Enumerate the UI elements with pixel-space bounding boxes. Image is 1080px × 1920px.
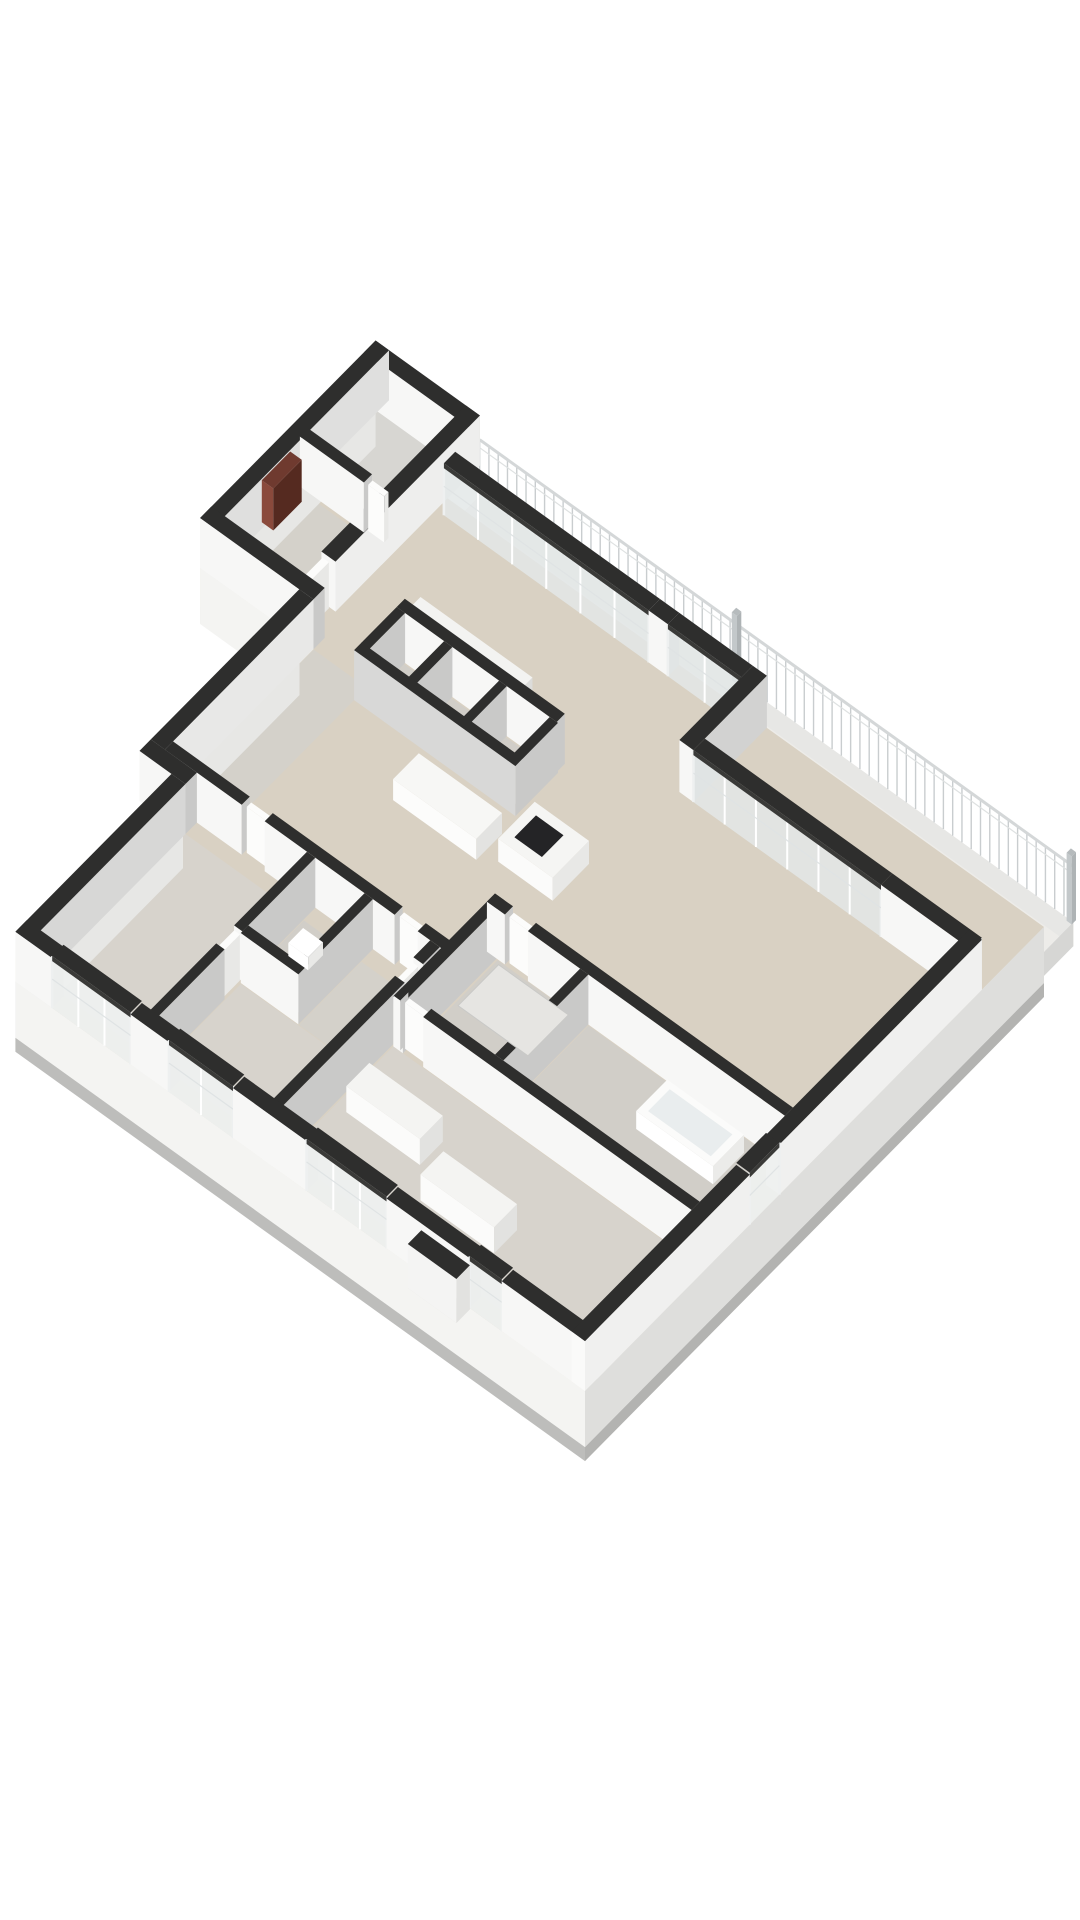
floorplan-canvas [0, 0, 1080, 1920]
wall-bathroom-north-a [487, 894, 513, 965]
floorplan-3d-svg [0, 0, 1080, 1920]
railing-post-end [1067, 848, 1076, 924]
